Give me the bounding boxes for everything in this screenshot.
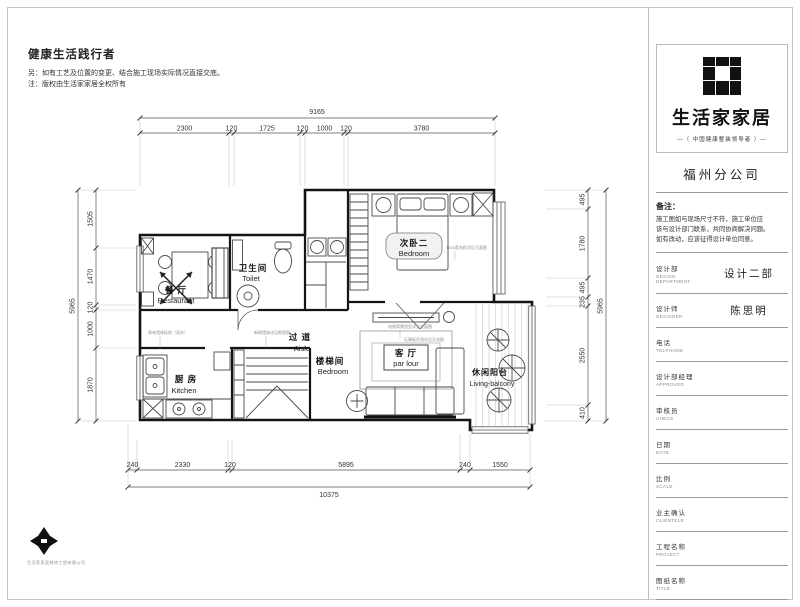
field-scale: 比例SCALE — [656, 464, 788, 498]
company-caption: 生活家家居装饰工程有限公司 — [27, 559, 86, 565]
field-date: 日期DATE — [656, 430, 788, 464]
room-aisle-en: Aisle — [294, 344, 310, 353]
svg-text:120: 120 — [88, 302, 95, 314]
field-design-department: 设计部DESIGN DEPARTMENT 设计二部 — [656, 253, 788, 294]
svg-text:120: 120 — [226, 126, 238, 133]
room-balcony-en: Living-balcony — [470, 381, 515, 388]
room-kitchen-cn: 厨 房 — [175, 374, 197, 384]
field-clientele: 业主确认CLIENTELE — [656, 498, 788, 532]
title-block: 生活家家居 —〔 中国健康整装领导者 〕— 福州分公司 备注： 施工图如与现场尺… — [656, 44, 788, 607]
brand-name: 生活家家居 — [663, 104, 781, 130]
brand-square-icon — [703, 57, 741, 95]
field-telephone: 电话TELPHONE — [656, 328, 788, 362]
dim-bottom-overall: 10375 — [319, 492, 339, 499]
svg-text:5895: 5895 — [338, 462, 354, 469]
room-restaurant-cn: 餐 厅 — [164, 285, 187, 295]
room-parlour-en: par lour — [393, 359, 419, 368]
svg-text:1505: 1505 — [88, 211, 95, 227]
dim-left-overall: 5965 — [70, 298, 77, 314]
svg-text:1550: 1550 — [492, 462, 508, 469]
svg-text:1000: 1000 — [88, 321, 95, 337]
room-parlour-cn: 客 厅 — [394, 348, 417, 358]
room-aisle-cn: 过 道 — [289, 332, 311, 342]
room-stairroom-en: Bedroom — [318, 367, 348, 376]
room-toilet-en: Toilet — [242, 274, 260, 283]
field-dwg-no: 图纸编号· DWG NO — [656, 600, 788, 607]
annotation: 1200宽衣柜详见立面图 — [446, 244, 487, 250]
annotation: 原有墙体拆除（深灰） — [148, 329, 188, 335]
svg-text:2300: 2300 — [177, 126, 193, 133]
svg-text:1470: 1470 — [88, 269, 95, 285]
room-bedroom2-cn: 次卧二 — [400, 238, 429, 248]
svg-text:1000: 1000 — [317, 126, 333, 133]
diamond-logo-icon — [30, 527, 58, 555]
field-approved: 设计部经理APPROVED — [656, 362, 788, 396]
svg-text:240: 240 — [127, 462, 139, 469]
svg-text:120: 120 — [340, 126, 352, 133]
field-check: 审核员CHECK — [656, 396, 788, 430]
svg-text:495: 495 — [580, 282, 587, 294]
room-kitchen-en: Kitchen — [171, 386, 196, 395]
room-balcony-cn: 休闲阳台 — [471, 367, 508, 377]
svg-text:2330: 2330 — [175, 462, 191, 469]
remark-block: 备注： 施工图如与现场尺寸不符，施工单位应 该与设计部门联系，共同协商解决问题。… — [656, 193, 788, 253]
field-value: 设计二部 — [710, 266, 788, 281]
room-stairroom-cn: 楼梯间 — [316, 356, 345, 366]
svg-text:1725: 1725 — [259, 126, 275, 133]
annotation: 石膏板吊顶详见天花图 — [404, 336, 444, 342]
annotation: 电视背景造型详见立面图 — [388, 323, 432, 329]
brand-tagline: —〔 中国健康整装领导者 〕— — [663, 135, 781, 143]
svg-text:240: 240 — [459, 462, 471, 469]
remark-line: 该与设计部门联系，共同协商解决问题。 — [656, 225, 788, 235]
svg-text:1780: 1780 — [580, 236, 587, 252]
svg-text:1870: 1870 — [88, 377, 95, 393]
svg-text:235: 235 — [580, 296, 587, 308]
svg-text:3780: 3780 — [414, 126, 430, 133]
room-bedroom2-en: Bedroom — [399, 249, 429, 258]
walls — [140, 190, 532, 430]
svg-text:410: 410 — [580, 407, 587, 419]
svg-text:2550: 2550 — [580, 348, 587, 364]
floor-plan: 9165 2300 120 1725 120 1000 120 3780 596… — [0, 0, 650, 607]
field-project: 工程名称PROJECT — [656, 532, 788, 566]
svg-text:495: 495 — [580, 194, 587, 206]
dim-right-overall: 5965 — [598, 298, 605, 314]
brand-logo-box: 生活家家居 —〔 中国健康整装领导者 〕— — [656, 44, 788, 153]
svg-text:120: 120 — [224, 462, 236, 469]
branch-name: 福州分公司 — [656, 153, 788, 193]
field-title: 图纸名称TITLE — [656, 566, 788, 600]
remark-line: 施工图如与现场尺寸不符，施工单位应 — [656, 215, 788, 225]
room-toilet-cn: 卫生间 — [239, 263, 268, 273]
remark-line: 如有改动，应该征得设计单位同意。 — [656, 235, 788, 245]
company-mark: 生活家家居装饰工程有限公司 — [27, 527, 86, 565]
drawing-sheet: 健康生活践行者 另：如有工艺及位置的变更、结合施工现场实际情况直接交底。 注：版… — [0, 0, 800, 607]
remark-title: 备注： — [656, 201, 788, 212]
room-restaurant-en: Restaurant — [158, 296, 196, 305]
field-value: 陈思明 — [710, 303, 788, 318]
field-designer: 设计师DESIGNER 陈思明 — [656, 294, 788, 328]
annotation: 新砌墙体详见砌墙图 — [254, 329, 290, 335]
svg-text:120: 120 — [297, 126, 309, 133]
dim-top-overall: 9165 — [309, 109, 325, 116]
